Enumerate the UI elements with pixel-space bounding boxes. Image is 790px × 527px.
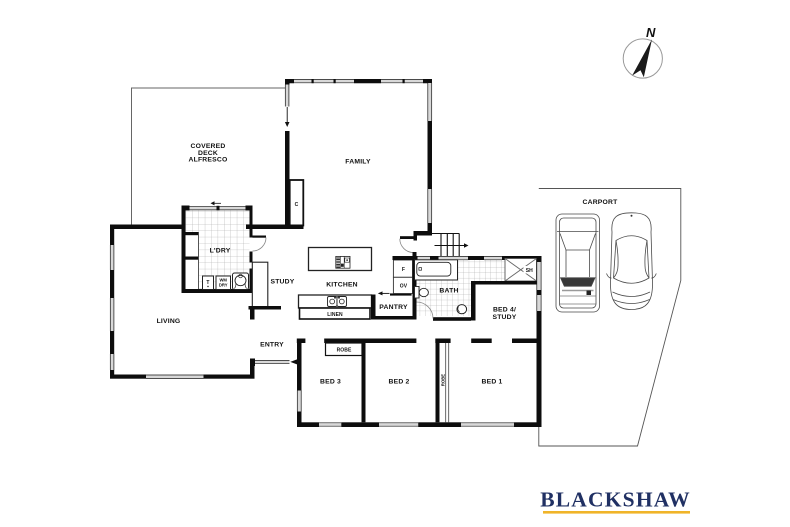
svg-text:ROBE: ROBE	[441, 374, 446, 386]
svg-text:STUDY: STUDY	[492, 314, 516, 321]
svg-text:DRY: DRY	[219, 283, 228, 288]
svg-text:BATH: BATH	[439, 288, 458, 295]
svg-text:ALFRESCO: ALFRESCO	[189, 157, 228, 164]
svg-text:BED 3: BED 3	[320, 378, 341, 385]
svg-text:BLACKSHAW: BLACKSHAW	[540, 488, 691, 512]
svg-text:STUDY: STUDY	[270, 279, 294, 286]
svg-text:SH: SH	[526, 268, 533, 274]
svg-text:CARPORT: CARPORT	[582, 199, 618, 206]
svg-text:OV: OV	[400, 284, 408, 290]
svg-text:L'DRY: L'DRY	[210, 248, 231, 255]
svg-text:F: F	[402, 267, 405, 273]
svg-text:PANTRY: PANTRY	[379, 304, 408, 311]
svg-text:ROBE: ROBE	[337, 348, 352, 354]
svg-text:BED 4/: BED 4/	[493, 307, 516, 314]
svg-text:BED 2: BED 2	[388, 378, 409, 385]
svg-text:FAMILY: FAMILY	[345, 159, 371, 166]
svg-text:C: C	[295, 202, 299, 208]
svg-text:LINEN: LINEN	[327, 312, 343, 318]
svg-text:BED 1: BED 1	[481, 378, 502, 385]
svg-text:T: T	[206, 280, 209, 286]
svg-text:ENTRY: ENTRY	[260, 342, 284, 349]
svg-text:N: N	[646, 25, 656, 40]
svg-text:KITCHEN: KITCHEN	[326, 282, 358, 289]
svg-text:LIVING: LIVING	[157, 318, 181, 325]
